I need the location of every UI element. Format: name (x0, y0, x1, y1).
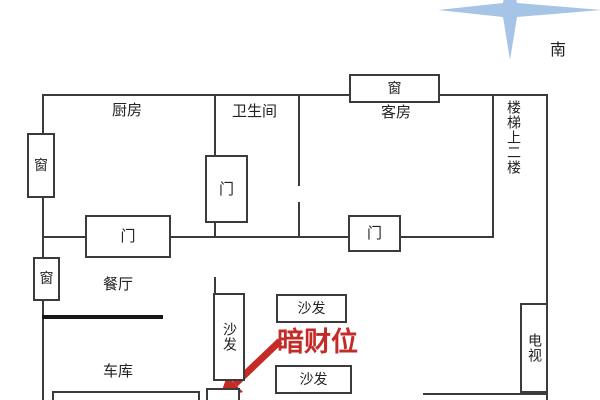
sofa-label: 沙发 (298, 302, 326, 316)
wall-guest-stairs (492, 94, 494, 238)
wall-top (42, 94, 548, 96)
wall-living-left-segment (214, 277, 216, 294)
wealth-spot-annotation: 暗财位 (277, 329, 358, 356)
south-label: 南 (550, 42, 566, 58)
wall-dining-garage (42, 315, 163, 319)
bathroom-label: 卫生间 (232, 104, 277, 119)
door-box-dining: 门 (85, 215, 171, 258)
door-label: 门 (120, 229, 135, 244)
window-box-dining: 窗 (33, 257, 60, 301)
kitchen-label: 厨房 (112, 103, 142, 118)
sofa-box-top: 沙发 (276, 294, 347, 323)
tv-label: 电视 (527, 333, 541, 363)
wall-bathroom-guest-upper (298, 94, 300, 186)
corner-box-below-sofa (206, 388, 240, 400)
tv-box: 电视 (520, 303, 548, 393)
stairs-label: 楼梯上二楼 (506, 100, 520, 185)
window-label: 窗 (34, 159, 48, 173)
wall-bottom (423, 393, 548, 395)
sofa-box-bottom: 沙发 (275, 365, 352, 394)
window-box-kitchen: 窗 (27, 133, 55, 198)
window-label: 窗 (40, 272, 54, 286)
sofa-box-left: 沙发 (213, 293, 245, 381)
door-label: 门 (219, 182, 234, 197)
door-box-bathroom: 门 (205, 155, 248, 223)
window-box-guest: 窗 (349, 74, 440, 103)
guest-room-label: 客房 (381, 105, 411, 120)
window-label: 窗 (388, 82, 402, 96)
sofa-label: 沙发 (300, 373, 328, 387)
door-box-guest: 门 (348, 215, 401, 252)
garage-door-box (52, 391, 200, 400)
garage-label: 车库 (103, 364, 133, 379)
compass-star-icon (438, 0, 600, 60)
sofa-label: 沙发 (222, 322, 236, 352)
dining-room-label: 餐厅 (103, 277, 133, 292)
floor-plan: 窗 窗 窗 门 门 门 沙发 沙发 沙发 电视 厨房 卫生间 客房 楼梯上二楼 … (0, 0, 600, 400)
wall-bathroom-guest-lower (298, 202, 300, 238)
door-label: 门 (367, 226, 382, 241)
